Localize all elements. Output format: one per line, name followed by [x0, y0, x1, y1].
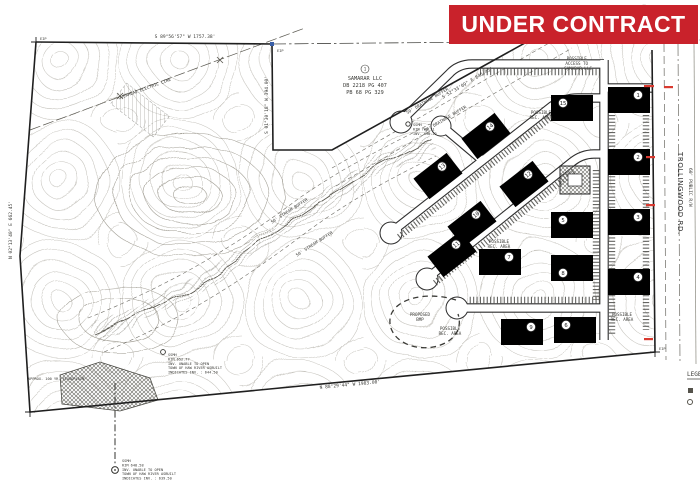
svg-text:1: 1: [636, 93, 639, 99]
site-plan-canvas: 1 2 3 4 15 5 8 6 14 13 12 10 11 7 9: [0, 0, 700, 500]
building: 3: [608, 209, 650, 235]
eip-label: EIP: [277, 49, 284, 53]
building: 4: [608, 269, 650, 295]
amenity-building: [560, 166, 590, 194]
building: 5: [551, 212, 593, 238]
svg-text:7: 7: [507, 255, 510, 261]
building: 8: [551, 255, 593, 281]
rec-area-label: POSSIBLEREC. AREA: [530, 110, 553, 120]
ssmh-note: SSMH RIM 648.58 INV. UNABLE TO OPEN TOWN…: [122, 459, 178, 481]
possible-access-label: POSSIBLE ACCESS TO SAMARAR LLC: [564, 56, 592, 71]
svg-text:6: 6: [564, 323, 567, 329]
building: 15: [551, 95, 593, 121]
floodplain-label: APPROX. 100 YR. FLOODPLAIN: [28, 377, 84, 381]
building: 1: [608, 87, 650, 113]
svg-text:2: 2: [636, 155, 639, 161]
building: 2: [608, 149, 650, 175]
svg-text:5: 5: [561, 218, 564, 224]
legend-symbol-icon: [688, 400, 693, 405]
under-contract-banner: UNDER CONTRACT: [449, 5, 698, 44]
svg-text:PB 68 PG 329: PB 68 PG 329: [346, 90, 383, 96]
bearing-left: N 02°13'40" E 662.45': [8, 201, 14, 259]
manhole-icon: [406, 122, 410, 126]
building: 9: [501, 319, 543, 345]
site-plan-page: 1 2 3 4 15 5 8 6 14 13 12 10 11 7 9: [0, 0, 700, 500]
bearing-top: S 89°56'57" W 1757.38': [155, 34, 216, 40]
road-name-label: TROLLINGWOOD RD.: [676, 151, 684, 235]
rec-area-label: POSSIBLEREC. AREA: [439, 326, 462, 336]
building: 6: [554, 317, 596, 343]
adjoiner-parcel-label: 1 SAMARAR LLC DB 2218 PG 407 PB 68 PG 32…: [343, 65, 387, 96]
road-rw-label: 60' PUBLIC R/W: [687, 168, 693, 207]
legend-title: LEGEND: [687, 371, 700, 378]
svg-text:DB 2218 PG 407: DB 2218 PG 407: [343, 83, 387, 89]
rec-area-label: POSSIBLEREC. AREA: [611, 312, 634, 322]
building: 7: [479, 249, 521, 275]
svg-text:3: 3: [636, 215, 639, 221]
legend-symbol-icon: [688, 388, 693, 393]
svg-text:15: 15: [560, 101, 567, 107]
manhole-center-icon: [114, 469, 116, 471]
svg-text:SAMARAR LLC: SAMARAR LLC: [348, 76, 382, 82]
manhole-icon: [161, 350, 166, 355]
legend-fragment: LEGEND: [687, 371, 700, 405]
eip-label: EIP: [40, 37, 47, 41]
eip-label: EIP: [659, 347, 666, 351]
iron-pipe-marker-icon: [270, 42, 274, 46]
svg-text:1: 1: [364, 67, 367, 72]
rec-area-label: POSSIBLEREC. AREA: [488, 239, 511, 249]
bearing-notch: S 01°30'18" W 394.00': [264, 76, 270, 134]
svg-text:9: 9: [529, 325, 532, 331]
